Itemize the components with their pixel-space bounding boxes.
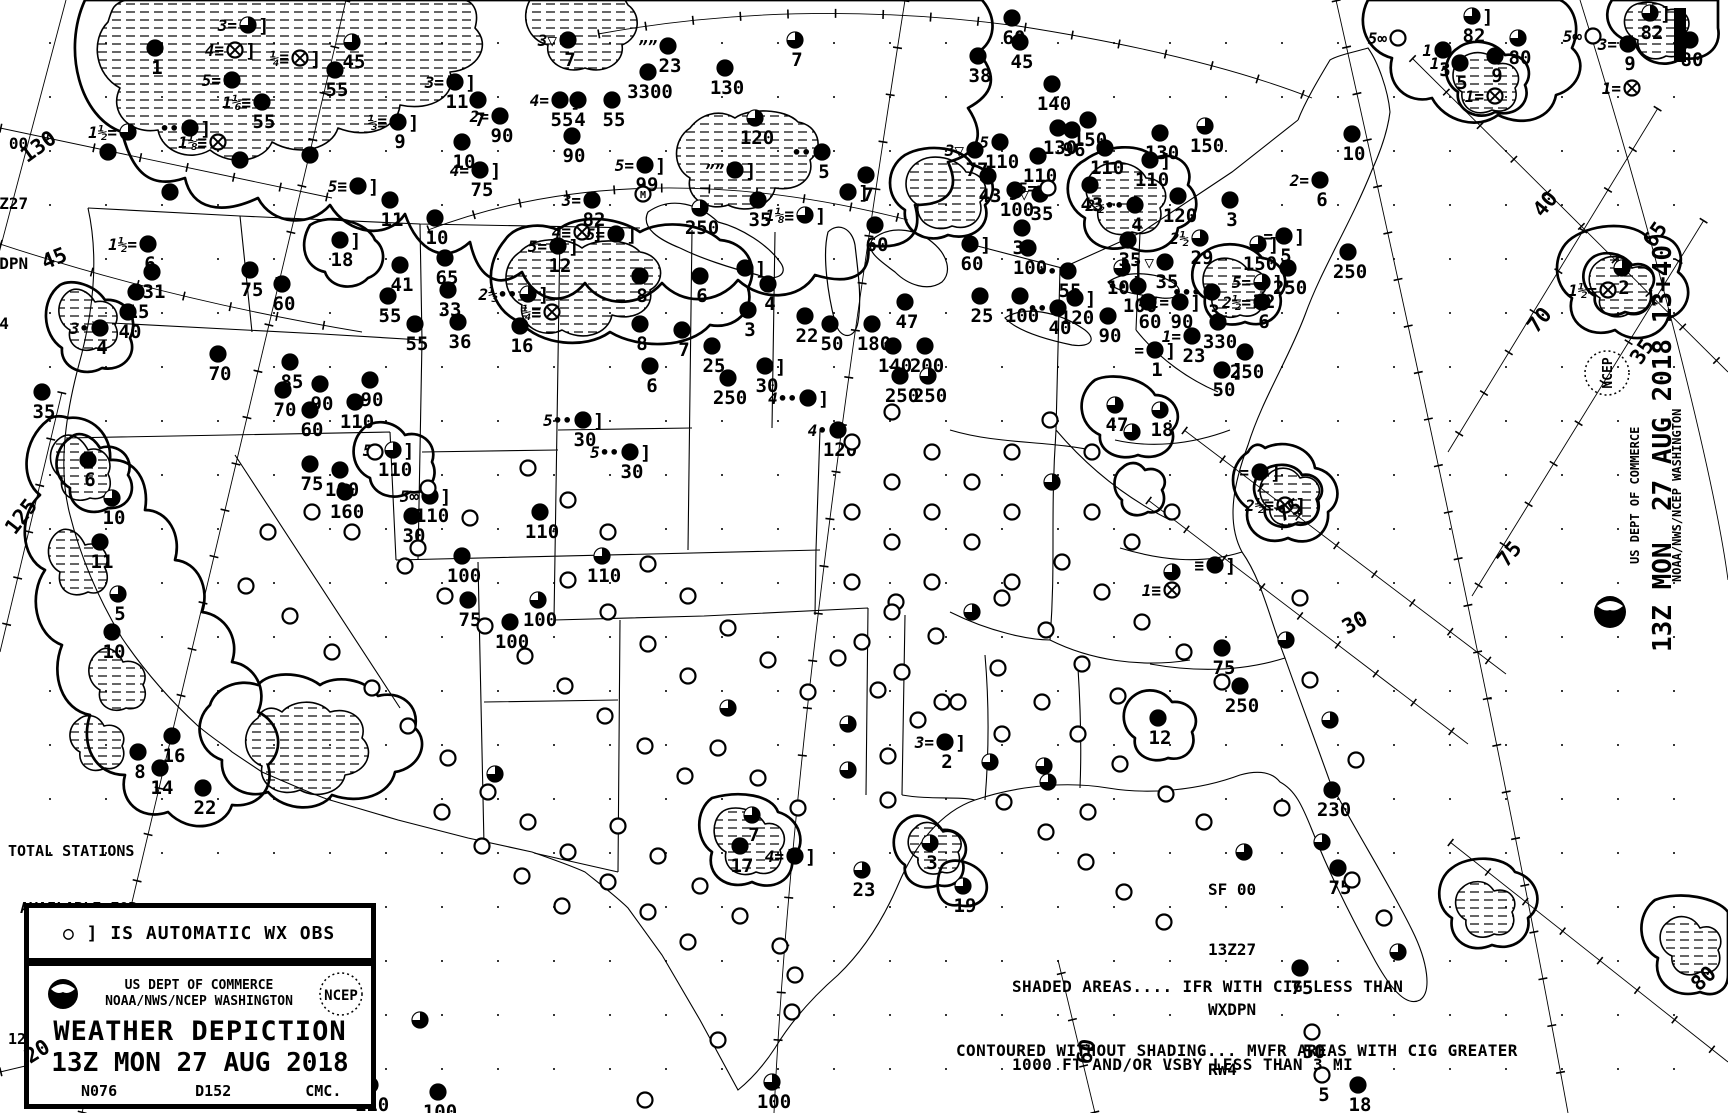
station-circle [408,317,423,332]
station-circle [1021,241,1036,256]
station-circle [1215,641,1230,656]
station-circle [918,339,933,354]
station-wx-symbol: 3▽ [944,141,965,160]
station-value: 6 [696,285,707,307]
station-wx-symbol: 1= [1465,87,1484,106]
station-circle [938,735,953,750]
station-value: 60 [273,293,296,315]
station-circle [973,289,988,304]
noaa-logo [43,974,83,1014]
auto-obs-bracket: ] [245,40,256,62]
station-value: 23 [1183,345,1206,367]
station-circle [1436,43,1451,58]
station-circle [555,899,570,914]
station-value: 9 [394,131,405,153]
station-circle [831,423,846,438]
station-wx-symbol: 3= [914,733,934,752]
station-wx-symbol: 1½= [108,235,137,254]
station-circle [421,481,436,496]
station-value: 23 [659,55,682,77]
station-circle [761,653,776,668]
station-value: 100 [447,565,481,587]
station-wx-symbol: 3= [1597,35,1617,54]
station-wx-symbol: 5∞ [1563,27,1583,46]
station-value: 10 [1343,143,1366,165]
station-circle [643,359,658,374]
station-circle [333,463,348,478]
station-value: 250 [913,385,947,407]
station-circle [398,559,413,574]
station-circle [831,651,846,666]
station-circle [393,258,408,273]
station-circle [428,211,443,226]
station-value: 55 [379,305,402,327]
station-wx-symbol: 4≡ [205,41,224,60]
station-circle [101,145,116,160]
mvfr-contours [25,0,1728,994]
station-circle [605,93,620,108]
station-sky-wedge [1193,231,1201,239]
station-value: 25 [971,305,994,327]
station-circle [751,193,766,208]
station-value: 140 [1037,93,1071,115]
station-value: 110 [340,411,374,433]
station-sky-wedge [841,763,849,771]
station-sky-wedge [1037,759,1045,767]
station-sky-wedge [956,879,964,887]
station-circle [661,39,676,54]
station-wx-symbol: ▽ [1144,253,1154,272]
station-value: 100 [523,609,557,631]
station-circle [1238,345,1253,360]
station-value: 90 [361,389,384,411]
station-wx-symbol: 4= [530,91,549,110]
station-sky-wedge [1323,713,1331,721]
station-wx-symbol: 1⅛≡ [765,206,794,225]
station-circle [791,801,806,816]
station-value: 29 [1191,247,1214,269]
station-value: 8 [636,333,647,355]
station-value: 1 [151,57,162,79]
station-circle [1208,558,1223,573]
station-circle [431,1085,446,1100]
station-circle [1005,445,1020,460]
station-circle [881,749,896,764]
station-circle [601,525,616,540]
station-circle [1325,783,1340,798]
station-value: 250 [1273,277,1307,299]
station-circle [441,751,456,766]
station-circle [1488,49,1503,64]
station-circle [338,485,353,500]
station-circle [641,905,656,920]
station-wx-symbol: 5•• [543,411,572,430]
station-wx-symbol: 5≡ [328,177,347,196]
auto-obs-bracket: ] [490,160,501,182]
station-circle [733,909,748,924]
station-circle [1128,198,1143,213]
station-wx-symbol: = [1263,227,1273,246]
station-value: 7 [791,49,802,71]
station-circle [481,785,496,800]
station-circle [1223,193,1238,208]
station-circle [1303,673,1318,688]
station-circle [471,93,486,108]
station-sky-wedge [1165,565,1173,573]
station-circle [1005,575,1020,590]
station-value: 230 [1317,799,1351,821]
station-wx-symbol: 2½= [1221,293,1251,312]
station-circle [1215,363,1230,378]
station-value: 22 [194,797,217,819]
station-circle [788,849,803,864]
station-value: 36 [449,331,472,353]
station-circle [275,277,290,292]
station-value: 110 [378,459,412,481]
auto-obs-bracket: ] [815,205,826,227]
station-circle [1051,301,1066,316]
station-value: 18 [331,249,354,271]
station-circle [276,383,291,398]
station-circle [761,277,776,292]
auto-obs-bracket: ] [1270,462,1281,484]
station-value: 250 [1225,695,1259,717]
station-value: 130 [710,77,744,99]
station-value: 5 [818,161,829,183]
station-value: 110 [415,505,449,527]
station-value: 82 [1463,25,1486,47]
station-circle [435,805,450,820]
station-circle [345,525,360,540]
corner-id-block: SF 00 13Z27 WXDPN RW4 [0,94,28,374]
station-value: 250 [1333,261,1367,283]
station-value: 100 [1013,257,1047,279]
station-circle [1293,591,1308,606]
station-value: 47 [896,311,919,333]
station-value: 7 [564,49,575,71]
auto-obs-bracket: ] [1190,292,1201,314]
auto-obs-bracket: ] [745,160,756,182]
station-circle [521,815,536,830]
station-wx-symbol: 4• [808,421,827,440]
station-circle [1197,815,1212,830]
station-wx-symbol: 3= [424,73,444,92]
auto-obs-bracket: ] [655,155,666,177]
station-circle [678,769,693,784]
station-value: 45 [1011,51,1034,73]
station-circle [601,605,616,620]
station-circle [711,741,726,756]
station-circle [561,33,576,48]
station-circle [93,535,108,550]
station-circle [438,589,453,604]
station-circle [1151,711,1166,726]
station-circle [243,263,258,278]
station-value: 90 [1171,311,1194,333]
station-circle [1253,465,1268,480]
station-wx-symbol: = [1134,341,1144,360]
station-circle [728,163,743,178]
station-circle [1075,657,1090,672]
station-value: 40 [119,321,142,343]
station-value: 100 [423,1101,457,1113]
auto-obs-bracket: ] [465,72,476,94]
station-circle [313,377,328,392]
station-wx-symbol: •• [1108,277,1127,296]
station-circle [153,761,168,776]
station-wx-symbol: 1⅛≡ [178,133,207,152]
station-circle [451,315,466,330]
station-sky-wedge [488,767,496,775]
station-value: 120 [740,127,774,149]
station-circle [303,403,318,418]
station-circle [1131,279,1146,294]
station-circle [475,839,490,854]
station-circle [733,839,748,854]
station-value: 75 [301,473,324,495]
station-wx-symbol: 1 [1422,41,1432,60]
station-wx-symbol: 1½= [88,123,117,142]
station-circle [1391,31,1406,46]
station-sky-wedge [413,1013,421,1021]
station-value: 55 [406,333,429,355]
station-circle [758,359,773,374]
station-circle [991,661,1006,676]
auto-obs-bracket: ] [1482,6,1493,28]
station-circle [1148,343,1163,358]
station-sky-wedge [855,863,863,871]
station-circle [711,1033,726,1048]
station-value: 160 [330,501,364,523]
station-value: 120 [1163,205,1197,227]
station-value: 1 [1151,359,1162,381]
station-circle [391,115,406,130]
station-value: 3 [1226,209,1237,231]
station-circle [401,719,416,734]
station-circle [1171,189,1186,204]
station-value: 8 [636,285,647,307]
station-circle [751,771,766,786]
station-circle [638,739,653,754]
auto-obs-bracket: ] [775,356,786,378]
station-circle [283,355,298,370]
station-circle [1079,855,1094,870]
station-circle [681,935,696,950]
station-circle [148,41,163,56]
station-value: 110 [587,565,621,587]
station-circle [441,283,456,298]
station-circle [965,535,980,550]
station-circle [633,269,648,284]
station-sky-wedge [721,701,729,709]
station-circle [1159,787,1174,802]
station-value: 4 [764,293,775,315]
station-circle [868,218,883,233]
no-contours-note: NO CONTOURS .... VFR AREAS WITH CIG GREA… [996,1066,1478,1113]
station-circle [675,323,690,338]
station-circle [1165,505,1180,520]
station-circle [503,615,518,630]
station-circle [885,535,900,550]
station-circle [455,135,470,150]
station-value: 90 [491,125,514,147]
station-circle [963,237,978,252]
station-wx-symbol: 2⅓•• [477,285,517,304]
station-wx-symbol: 4= [450,161,469,180]
station-value: 75 [471,179,494,201]
station-circle [1277,229,1292,244]
station-value: 31 [143,281,166,303]
station-circle [1143,153,1158,168]
station-value: 6 [84,469,95,491]
station-circle [1005,11,1020,26]
station-wx-symbol: 2½•• [1084,196,1124,215]
station-circle [1045,77,1060,92]
station-value: 55 [1059,280,1082,302]
station-circle [633,317,648,332]
station-circle [233,153,248,168]
station-circle [1101,309,1116,324]
station-sky-wedge [798,208,806,216]
station-circle [885,475,900,490]
station-circle [1313,173,1328,188]
station-circle [561,493,576,508]
ncep-logo: NCEP [1585,351,1629,395]
auto-obs-bracket: ] [408,112,419,134]
station-circle [895,665,910,680]
station-wx-symbol: 5= [1232,273,1251,292]
station-circle [1005,505,1020,520]
auto-obs-bracket: ] [640,442,651,464]
side-agency-label: US DEPT OF COMMERCE NOAA/NWS/NCEP WASHIN… [1600,409,1712,582]
station-circle [383,193,398,208]
station-circle [1125,535,1140,550]
station-value: 43 [979,185,1002,207]
station-wx-symbol: 5= [586,225,605,244]
station-circle [693,269,708,284]
station-circle [1081,805,1096,820]
station-circle [333,233,348,248]
station-value: 110 [525,521,559,543]
station-circle [845,505,860,520]
svg-text:NCEP: NCEP [324,988,358,1004]
station-circle [368,445,383,460]
station-circle [211,347,226,362]
station-circle [255,95,270,110]
station-wx-symbol: 4= [765,847,784,866]
product-codes: N076 D152 CMC. [29,1082,371,1100]
station-circle [461,593,476,608]
station-circle [638,158,653,173]
station-wx-symbol: = [557,91,567,110]
station-circle [478,619,493,634]
station-wx-symbol: 2= [469,107,489,126]
station-circle [898,295,913,310]
station-sky-wedge [531,593,539,601]
station-circle [411,541,426,556]
station-value: 35 [33,401,56,423]
auto-obs-bracket: ] [980,234,991,256]
station-wx-symbol: = [1239,463,1249,482]
station-circle [131,745,146,760]
station-value: 6 [646,375,657,397]
station-circle [363,373,378,388]
station-wx-symbol: 3▽ [537,31,558,50]
station-circle [1233,679,1248,694]
station-circle [533,505,548,520]
station-value: 250 [685,217,719,239]
auto-obs-bracket: ] [258,15,269,37]
station-wx-symbol: 2½ [1169,229,1190,248]
station-sky-wedge [1511,31,1519,39]
product-title: WEATHER DEPICTION [29,1016,371,1047]
station-sky-wedge [595,549,603,557]
station-circle [518,649,533,664]
station-value: 19 [954,895,977,917]
station-wx-symbol: 3= [561,191,581,210]
station-value: 3 [744,319,755,341]
valid-time: 13Z MON 27 AUG 2018 [29,1048,371,1078]
station-wx-symbol: 4•• [768,389,797,408]
map-edge-mark [1674,8,1686,62]
station-circle [641,637,656,652]
corner-id-line: 13Z27 [0,194,28,214]
station-circle [1013,289,1028,304]
station-circle [705,339,720,354]
station-wx-symbol: 3= [217,16,237,35]
station-circle [718,61,733,76]
station-circle [145,265,160,280]
note-line: TOTAL STATIONS [8,842,153,861]
station-circle [515,869,530,884]
station-circle [1621,37,1636,52]
station-circle [871,683,886,698]
station-circle [448,75,463,90]
station-value: 45 [343,51,366,73]
station-circle [623,445,638,460]
station-circle [1015,221,1030,236]
station-circle [1275,801,1290,816]
station-circle [105,625,120,640]
station-circle [993,135,1008,150]
station-value: 5 [114,603,125,625]
station-value: 60 [866,234,889,256]
station-circle [1085,445,1100,460]
station-value: 110 [1090,157,1124,179]
station-circle [925,445,940,460]
station-value: 60 [301,419,324,441]
station-circle [741,303,756,318]
station-value: 82 [1641,22,1664,44]
station-value: 70 [209,363,232,385]
corner-id-line: RW4 [0,314,28,334]
station-sky-wedge [1153,403,1161,411]
station-circle [855,635,870,650]
station-circle [845,435,860,450]
auto-obs-bracket: ] [1232,360,1243,382]
station-circle [121,305,136,320]
station-value: 30 [621,461,644,483]
station-circle [885,405,900,420]
station-circle [1117,885,1132,900]
station-value: 250 [713,387,747,409]
station-circle [1035,695,1050,710]
auto-obs-bracket: ] [955,732,966,754]
station-circle [1061,264,1076,279]
station-wx-symbol: 5∞ [1368,29,1388,48]
station-sky-wedge [1315,835,1323,843]
station-wx-symbol: 5= [615,156,634,175]
